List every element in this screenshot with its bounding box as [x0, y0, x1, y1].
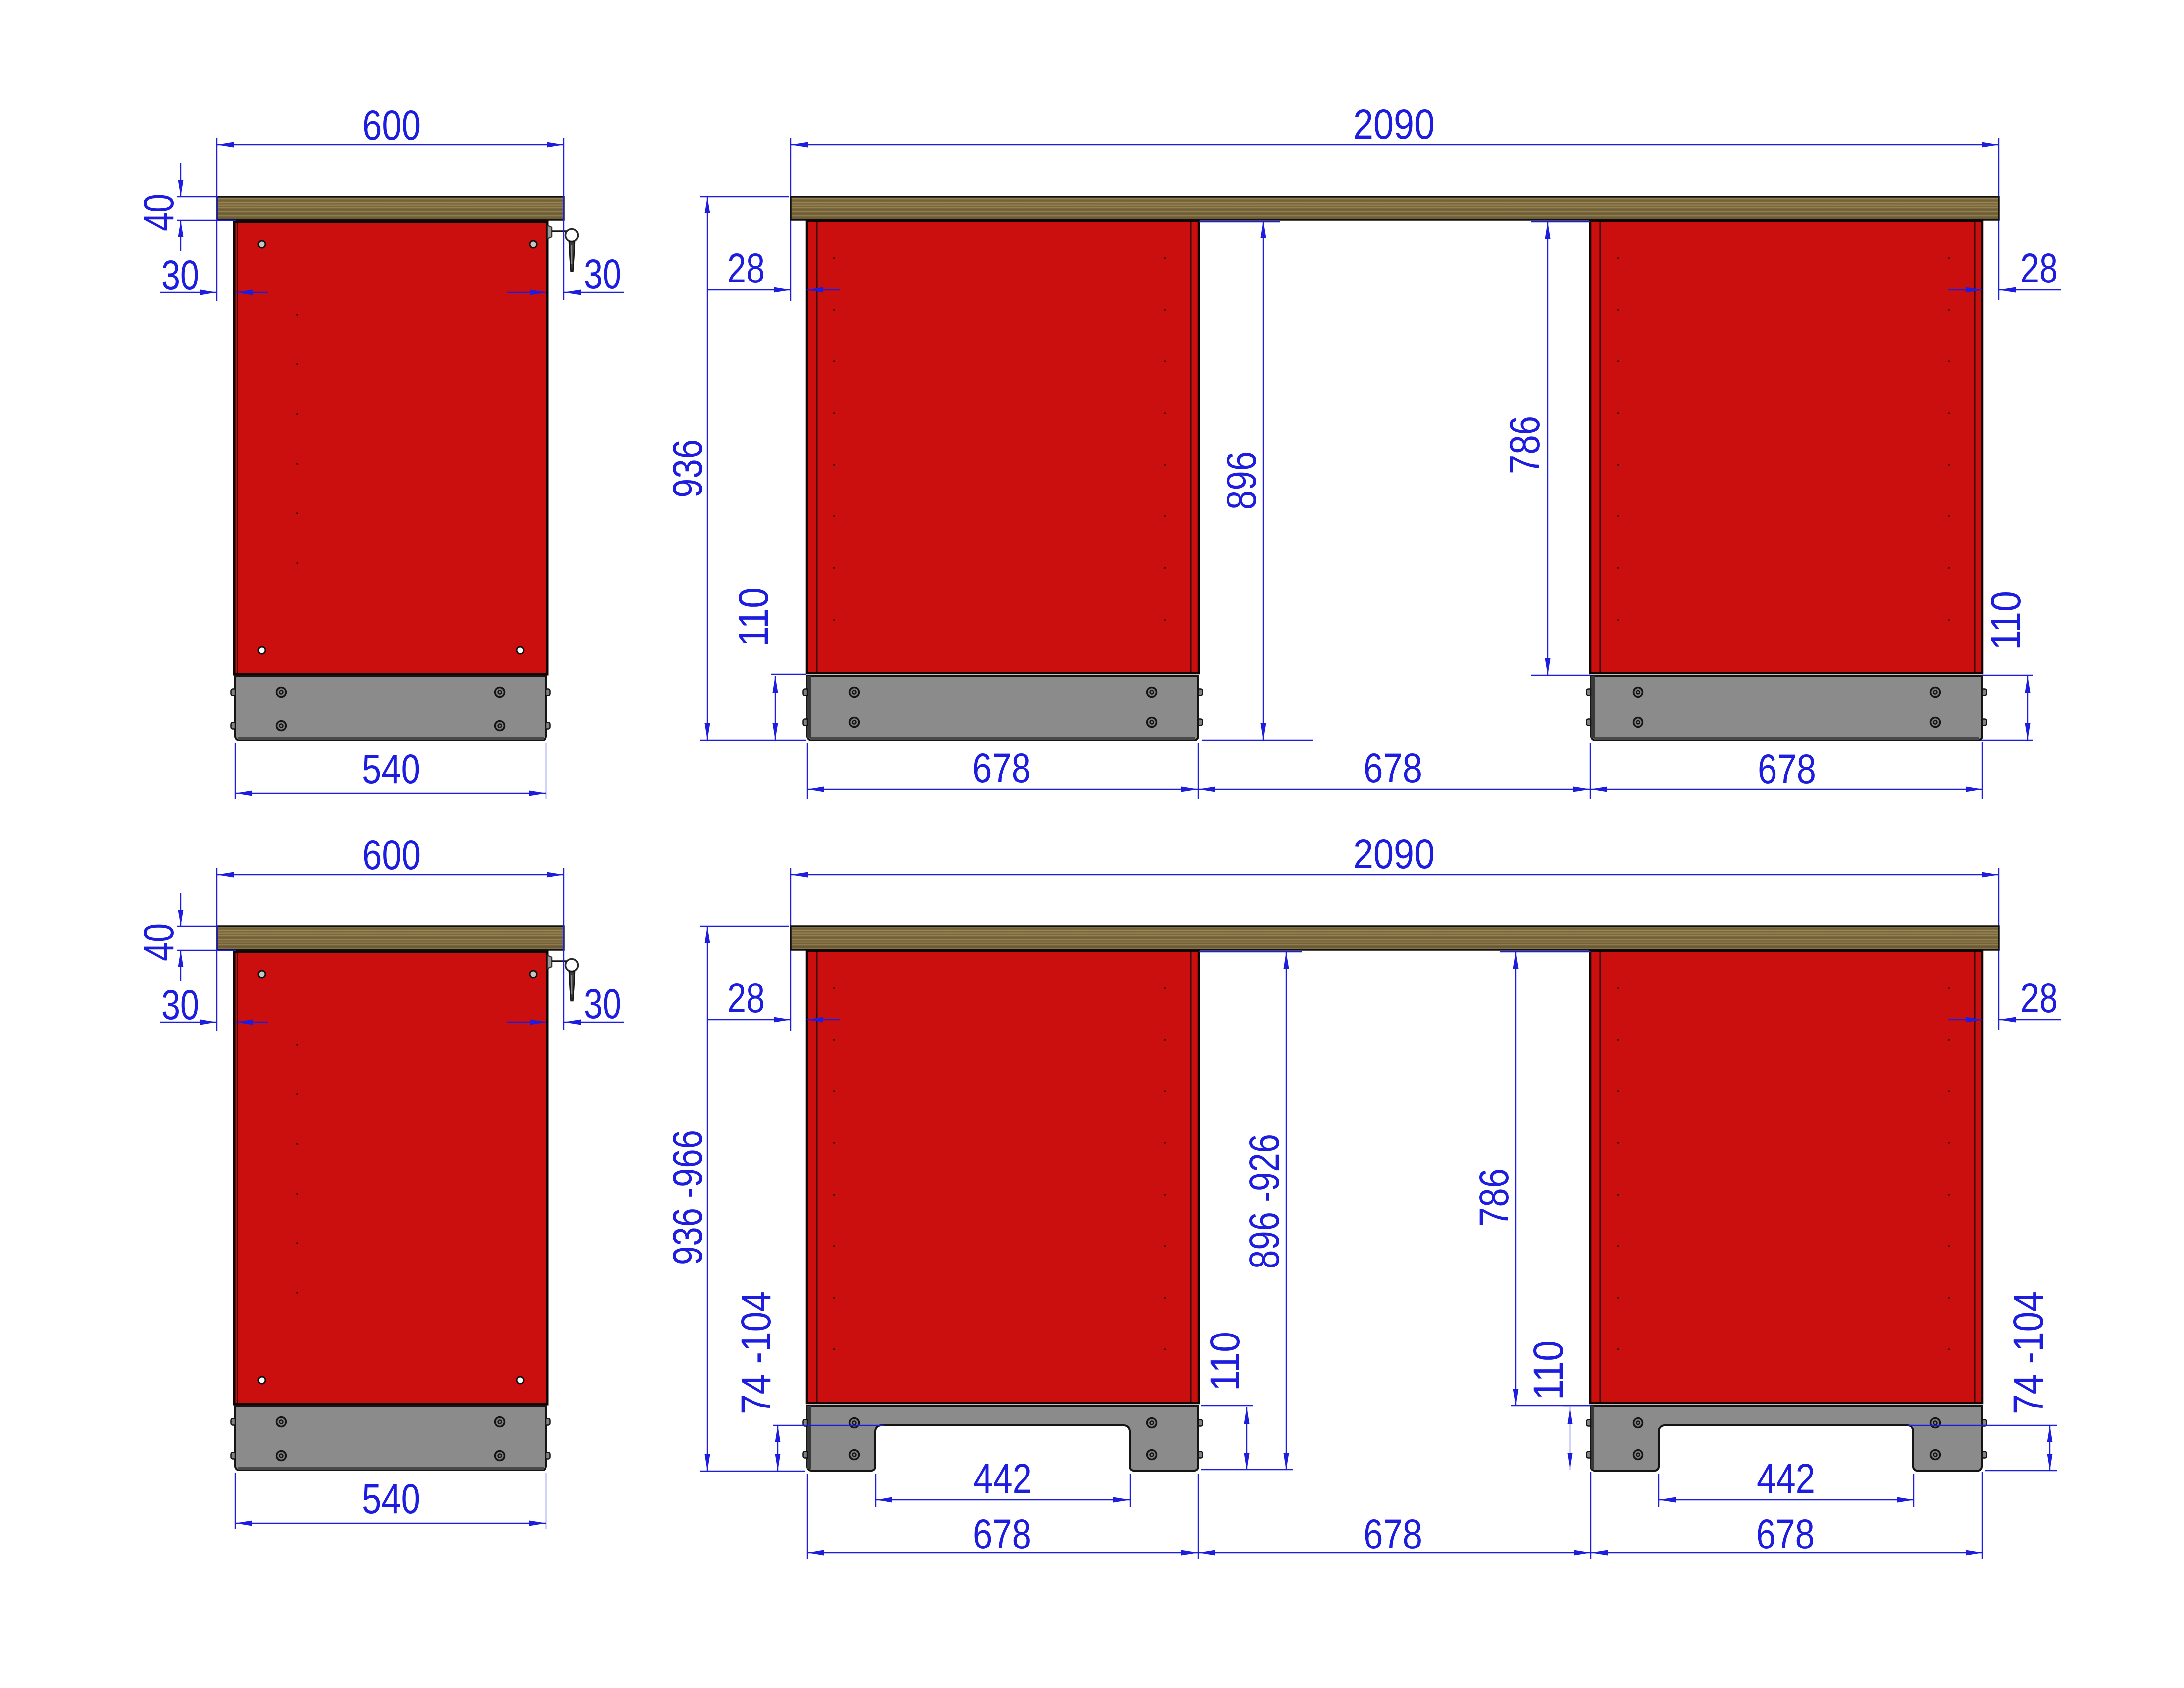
- svg-text:28: 28: [727, 245, 765, 291]
- svg-text:2090: 2090: [1353, 101, 1434, 147]
- svg-text:600: 600: [362, 102, 421, 148]
- svg-text:678: 678: [972, 745, 1031, 791]
- svg-text:40: 40: [136, 194, 182, 231]
- svg-text:936 -966: 936 -966: [664, 1130, 711, 1265]
- svg-text:2090: 2090: [1353, 831, 1434, 877]
- svg-text:442: 442: [1757, 1455, 1815, 1502]
- svg-text:28: 28: [2020, 975, 2058, 1021]
- svg-text:786: 786: [1471, 1168, 1517, 1227]
- svg-text:28: 28: [727, 975, 765, 1021]
- svg-text:600: 600: [362, 832, 421, 878]
- svg-text:28: 28: [2020, 245, 2058, 291]
- svg-text:786: 786: [1501, 416, 1548, 474]
- svg-text:74 -104: 74 -104: [733, 1291, 779, 1414]
- svg-text:540: 540: [362, 746, 420, 792]
- svg-text:40: 40: [136, 923, 182, 961]
- svg-text:30: 30: [161, 252, 199, 298]
- svg-text:110: 110: [1982, 591, 2029, 650]
- svg-text:540: 540: [362, 1476, 420, 1522]
- svg-text:678: 678: [1758, 746, 1816, 792]
- svg-text:30: 30: [584, 251, 621, 297]
- svg-text:30: 30: [161, 982, 199, 1028]
- svg-text:896: 896: [1218, 451, 1265, 510]
- svg-text:442: 442: [973, 1455, 1032, 1502]
- svg-text:110: 110: [1202, 1332, 1248, 1391]
- svg-text:110: 110: [1525, 1340, 1571, 1400]
- svg-text:678: 678: [1364, 745, 1422, 791]
- svg-text:896 -926: 896 -926: [1241, 1134, 1288, 1269]
- svg-text:678: 678: [1364, 1511, 1422, 1557]
- svg-text:678: 678: [973, 1511, 1031, 1557]
- svg-text:678: 678: [1756, 1511, 1815, 1557]
- svg-text:30: 30: [584, 981, 621, 1027]
- svg-text:74 -104: 74 -104: [2005, 1291, 2051, 1414]
- svg-text:936: 936: [664, 439, 711, 498]
- svg-text:110: 110: [730, 587, 777, 647]
